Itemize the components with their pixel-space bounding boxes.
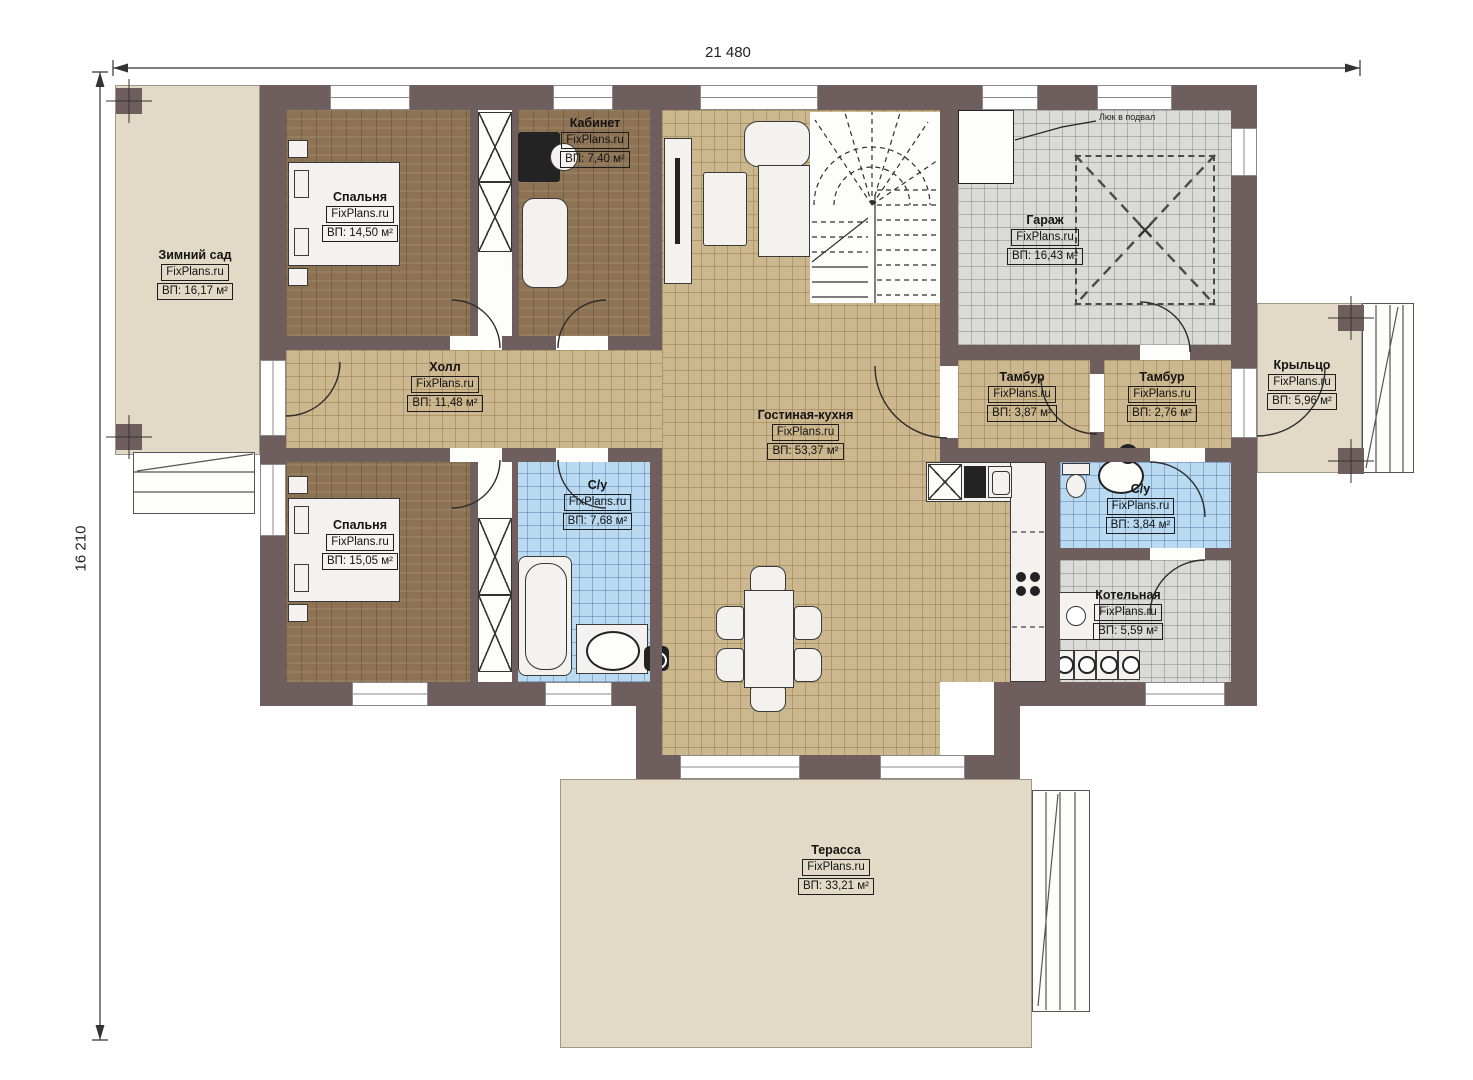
- brand-box: FixPlans.ru: [802, 859, 870, 876]
- sink-basin: [992, 471, 1010, 495]
- room-label-living-kitchen: Гостиная-кухня FixPlans.ru ВП: 53,37 м²: [738, 408, 873, 460]
- brand-box: FixPlans.ru: [988, 386, 1056, 403]
- window: [880, 755, 965, 779]
- dining-table: [744, 590, 794, 688]
- porch-steps: [1362, 303, 1414, 473]
- window: [982, 85, 1038, 110]
- area-box: ВП: 7,68 м²: [563, 513, 633, 530]
- column: [116, 88, 142, 114]
- doorway: [1140, 345, 1190, 360]
- brand-box: FixPlans.ru: [772, 424, 840, 441]
- basement-hatch: [958, 110, 1014, 184]
- window: [1097, 85, 1172, 110]
- area-box: ВП: 5,59 м²: [1093, 623, 1163, 640]
- bathtub-inner: [525, 563, 567, 670]
- meter-dial: [1078, 656, 1096, 674]
- brand-box: FixPlans.ru: [326, 534, 394, 551]
- wall: [512, 460, 518, 682]
- brand-box: FixPlans.ru: [1011, 229, 1079, 246]
- dimension-line-left: [92, 72, 108, 1040]
- dimension-arrows-left: [96, 72, 105, 1040]
- area-box: ВП: 2,76 м²: [1127, 405, 1197, 422]
- room-name: Тамбур: [999, 370, 1044, 384]
- dining-chair: [716, 648, 744, 682]
- window: [553, 85, 613, 110]
- dining-chair: [794, 606, 822, 640]
- staircase: [810, 112, 940, 303]
- dimension-height-label: 16 210: [72, 526, 89, 572]
- brand-box: FixPlans.ru: [411, 376, 479, 393]
- wall: [650, 460, 662, 682]
- wall: [1205, 548, 1231, 560]
- room-label-winter-garden: Зимний сад FixPlans.ru ВП: 16,17 м²: [135, 248, 255, 300]
- wall: [1205, 448, 1231, 462]
- room-name: Спальня: [333, 518, 387, 532]
- wall: [940, 110, 958, 360]
- room-name: С/у: [588, 478, 607, 492]
- dimension-line-top: [113, 60, 1360, 76]
- room-label-tambour-right: Тамбур FixPlans.ru ВП: 2,76 м²: [1112, 370, 1212, 422]
- room-name: Крыльцо: [1274, 358, 1331, 372]
- dimension-width-label: 21 480: [705, 44, 751, 61]
- terrace-floor: [560, 779, 1032, 1048]
- brand-box: FixPlans.ru: [1107, 498, 1175, 515]
- area-box: ВП: 53,37 м²: [767, 443, 843, 460]
- dining-chair: [750, 566, 786, 592]
- cooktop-burner: [1016, 586, 1026, 596]
- coffee-table: [703, 172, 747, 246]
- doorway: [556, 448, 608, 462]
- terrace-steps: [1032, 790, 1090, 1012]
- wall: [1060, 548, 1150, 560]
- wardrobe: [478, 595, 512, 672]
- terrace-door: [680, 755, 800, 779]
- room-name: С/у: [1131, 482, 1150, 496]
- brand-box: FixPlans.ru: [1128, 386, 1196, 403]
- wall: [1090, 448, 1150, 462]
- nightstand: [288, 604, 308, 622]
- room-name: Гараж: [1026, 213, 1063, 227]
- room-name: Спальня: [333, 190, 387, 204]
- sofa: [758, 165, 810, 257]
- dining-chair: [794, 648, 822, 682]
- room-label-bedroom-top: Спальня FixPlans.ru ВП: 14,50 м²: [300, 190, 420, 242]
- doorway: [556, 336, 608, 350]
- nightstand: [288, 140, 308, 158]
- brand-box: FixPlans.ru: [1094, 604, 1162, 621]
- armchair: [522, 198, 568, 288]
- sofa: [744, 121, 810, 167]
- area-box: ВП: 11,48 м²: [407, 395, 482, 412]
- toilet-bowl: [1066, 474, 1086, 498]
- dining-chair: [750, 686, 786, 712]
- bathroom-sink: [586, 631, 640, 671]
- column: [116, 424, 142, 450]
- room-name: Котельная: [1095, 588, 1160, 602]
- basement-hatch-note: Люк в подвал: [1099, 112, 1155, 122]
- window: [700, 85, 818, 110]
- column: [1338, 305, 1364, 331]
- room-label-hall: Холл FixPlans.ru ВП: 11,48 м²: [385, 360, 505, 412]
- cooktop-burner: [1030, 586, 1040, 596]
- winter-garden-steps: [133, 452, 255, 514]
- wardrobe: [478, 182, 512, 252]
- meter-dial: [1100, 656, 1118, 674]
- cooktop-burner: [1030, 572, 1040, 582]
- room-label-tambour-left: Тамбур FixPlans.ru ВП: 3,87 м²: [972, 370, 1072, 422]
- room-name: Терасса: [811, 843, 861, 857]
- area-box: ВП: 3,87 м²: [987, 405, 1057, 422]
- doorway: [450, 448, 502, 462]
- window: [352, 682, 428, 706]
- room-name: Гостиная-кухня: [758, 408, 854, 422]
- room-name: Кабинет: [570, 116, 621, 130]
- room-label-porch: Крыльцо FixPlans.ru ВП: 5,96 м²: [1248, 358, 1356, 410]
- column: [1338, 448, 1364, 474]
- wall: [940, 448, 1090, 462]
- wall: [650, 110, 662, 336]
- floor-plan: 21 480 16 210 Люк в подвал Зимний сад Fi…: [0, 0, 1473, 1080]
- brand-box: FixPlans.ru: [564, 494, 632, 511]
- dimension-arrows-top: [113, 64, 1360, 73]
- area-box: ВП: 15,05 м²: [322, 553, 398, 570]
- window: [330, 85, 410, 110]
- area-box: ВП: 5,96 м²: [1267, 393, 1337, 410]
- window: [260, 464, 286, 536]
- meter-dial: [1122, 656, 1140, 674]
- window: [1231, 128, 1257, 176]
- wall: [470, 460, 478, 682]
- room-name: Зимний сад: [158, 248, 231, 262]
- area-box: ВП: 7,40 м²: [560, 151, 630, 168]
- doorway: [1150, 548, 1205, 560]
- nightstand: [288, 476, 308, 494]
- nightstand: [288, 268, 308, 286]
- brand-box: FixPlans.ru: [326, 206, 394, 223]
- wall: [1090, 360, 1104, 374]
- dining-chair: [716, 606, 744, 640]
- area-box: ВП: 16,43 м²: [1007, 248, 1083, 265]
- room-label-garage: Гараж FixPlans.ru ВП: 16,43 м²: [985, 213, 1105, 265]
- room-label-boiler-room: Котельная FixPlans.ru ВП: 5,59 м²: [1072, 588, 1184, 640]
- room-label-office: Кабинет FixPlans.ru ВП: 7,40 м²: [540, 116, 650, 168]
- window: [545, 682, 612, 706]
- wardrobe: [478, 518, 512, 595]
- kitchen-stove: [964, 466, 986, 498]
- window: [1145, 682, 1225, 706]
- doorway: [1090, 374, 1104, 432]
- brand-box: FixPlans.ru: [1268, 374, 1336, 391]
- wall: [958, 345, 1257, 360]
- doorway: [940, 366, 958, 438]
- wardrobe: [478, 112, 512, 182]
- wall: [1046, 448, 1060, 682]
- wall: [1090, 432, 1104, 448]
- room-name: Холл: [429, 360, 460, 374]
- cooktop-burner: [1016, 572, 1026, 582]
- kitchen-cabinet: [928, 464, 962, 500]
- area-box: ВП: 3,84 м²: [1106, 517, 1176, 534]
- room-label-bathroom-right: С/у FixPlans.ru ВП: 3,84 м²: [1088, 482, 1193, 534]
- area-box: ВП: 14,50 м²: [322, 225, 398, 242]
- brand-box: FixPlans.ru: [161, 264, 229, 281]
- room-label-bathroom-left: С/у FixPlans.ru ВП: 7,68 м²: [545, 478, 650, 530]
- kitchen-counter: [1010, 462, 1046, 682]
- room-label-terrace: Терасса FixPlans.ru ВП: 33,21 м²: [772, 843, 900, 895]
- doorway: [1150, 448, 1205, 462]
- brand-box: FixPlans.ru: [561, 132, 629, 149]
- area-box: ВП: 33,21 м²: [798, 878, 874, 895]
- room-label-bedroom-bottom: Спальня FixPlans.ru ВП: 15,05 м²: [300, 518, 420, 570]
- tv: [675, 158, 680, 244]
- door-to-winter-garden: [260, 360, 286, 436]
- wall: [512, 110, 518, 336]
- doorway: [450, 336, 502, 350]
- room-name: Тамбур: [1139, 370, 1184, 384]
- wall: [470, 110, 478, 336]
- area-box: ВП: 16,17 м²: [157, 283, 233, 300]
